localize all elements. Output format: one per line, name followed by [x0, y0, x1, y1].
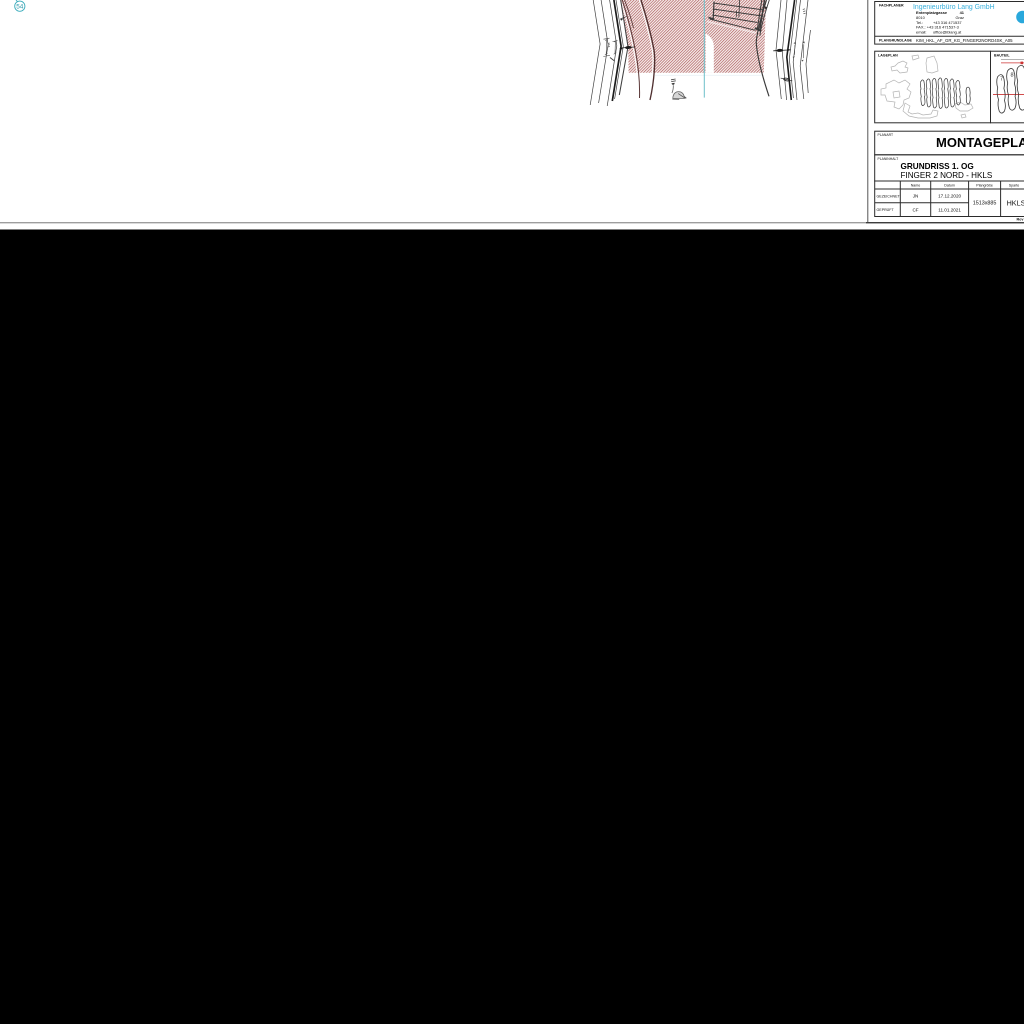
svg-text:PLANART: PLANART [878, 133, 894, 137]
svg-text:PLANGRUNDLAGE: PLANGRUNDLAGE [879, 39, 913, 43]
svg-text:1513x885: 1513x885 [973, 201, 997, 207]
svg-text:BAUTEIL: BAUTEIL [994, 53, 1010, 57]
svg-text:GEZEICHNET: GEZEICHNET [877, 194, 901, 198]
svg-text:office@iblang.at: office@iblang.at [933, 29, 962, 34]
svg-text:FACHPLANER: FACHPLANER [879, 3, 904, 7]
svg-text:11.01.2021: 11.01.2021 [938, 207, 961, 212]
svg-text:17.12.2020: 17.12.2020 [938, 194, 961, 199]
svg-text:JN: JN [913, 194, 919, 199]
svg-text:PLANINHALT: PLANINHALT [878, 157, 899, 161]
svg-text:KIM_HKL_AF_GR_KG_FINGER2NORD4S: KIM_HKL_AF_GR_KG_FINGER2NORD4SK_A05 [916, 38, 1013, 43]
svg-text:HKLS: HKLS [1007, 198, 1024, 207]
svg-text:LAGEPLAN: LAGEPLAN [878, 53, 898, 57]
svg-text:Datum: Datum [944, 183, 955, 187]
svg-text:8: 8 [1011, 73, 1014, 79]
svg-text:Plangröße: Plangröße [976, 183, 993, 187]
svg-text:GEPRÜFT: GEPRÜFT [877, 208, 895, 212]
svg-text:CF: CF [912, 207, 918, 212]
svg-text:7: 7 [1000, 77, 1003, 83]
svg-text:MONTAGEPLAN: MONTAGEPLAN [936, 135, 1024, 150]
svg-text:Name: Name [911, 183, 921, 187]
svg-text:54: 54 [16, 3, 24, 10]
svg-text:GRUNDRISS 1. OG: GRUNDRISS 1. OG [901, 162, 974, 171]
svg-text:Sparte: Sparte [1009, 183, 1020, 187]
svg-text:Rev: Rev [1017, 217, 1024, 221]
svg-text:FINGER 2 NORD - HKLS: FINGER 2 NORD - HKLS [901, 171, 993, 180]
svg-text:email:: email: [916, 29, 927, 34]
